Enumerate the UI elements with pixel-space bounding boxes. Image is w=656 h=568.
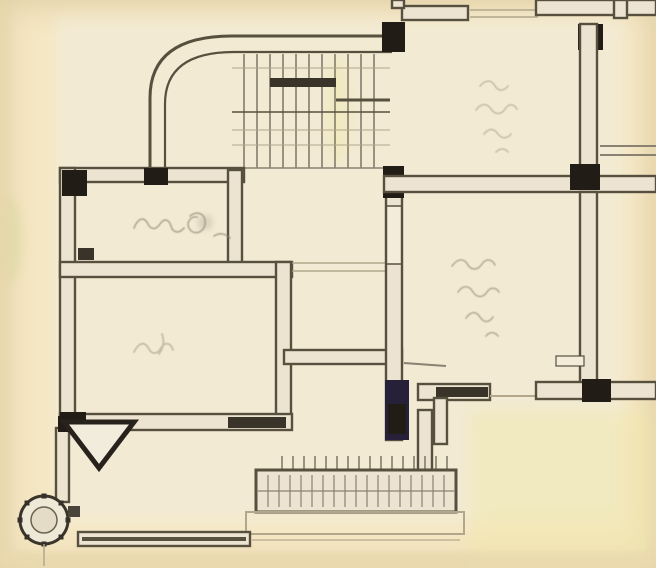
scanned-floorplan-page	[0, 0, 656, 568]
wall-dark-core	[228, 417, 286, 428]
door-opening	[388, 206, 401, 264]
wall-stub-up	[392, 0, 404, 8]
wall-stub-down	[434, 398, 447, 444]
window-sill-mark	[556, 356, 584, 366]
room-right-wall	[276, 262, 291, 420]
room-bottom-wall	[384, 176, 656, 192]
round-column-inner	[31, 507, 57, 533]
top-wall-left-segment	[402, 6, 468, 20]
column-marker	[144, 168, 168, 185]
room-right-wall	[580, 24, 597, 186]
wall-stub-up	[614, 0, 627, 18]
bottom-edge-shade	[0, 552, 656, 568]
stair-landing-edge	[270, 78, 336, 87]
paper-yellow-patch	[470, 410, 656, 568]
wall-dark-core	[436, 387, 488, 397]
room-bottom-wall	[60, 262, 292, 277]
room-right-wall	[228, 170, 242, 272]
column-core	[388, 404, 406, 434]
floorplan-drawing	[0, 0, 656, 568]
yellow-scan-tint	[326, 55, 350, 165]
right-edge-shade	[648, 0, 656, 568]
column-marker	[382, 22, 405, 52]
column-marker	[570, 164, 600, 190]
left-exterior-wall	[60, 168, 75, 430]
door-swing-mark	[78, 248, 94, 260]
column-tick-mark	[68, 506, 80, 517]
column-marker	[62, 170, 87, 196]
column-marker	[582, 379, 611, 402]
left-edge-shade	[0, 0, 10, 568]
terrace-left-wall	[56, 428, 69, 502]
hall-south-wall	[284, 350, 402, 364]
top-wall-right-segment	[536, 0, 656, 15]
